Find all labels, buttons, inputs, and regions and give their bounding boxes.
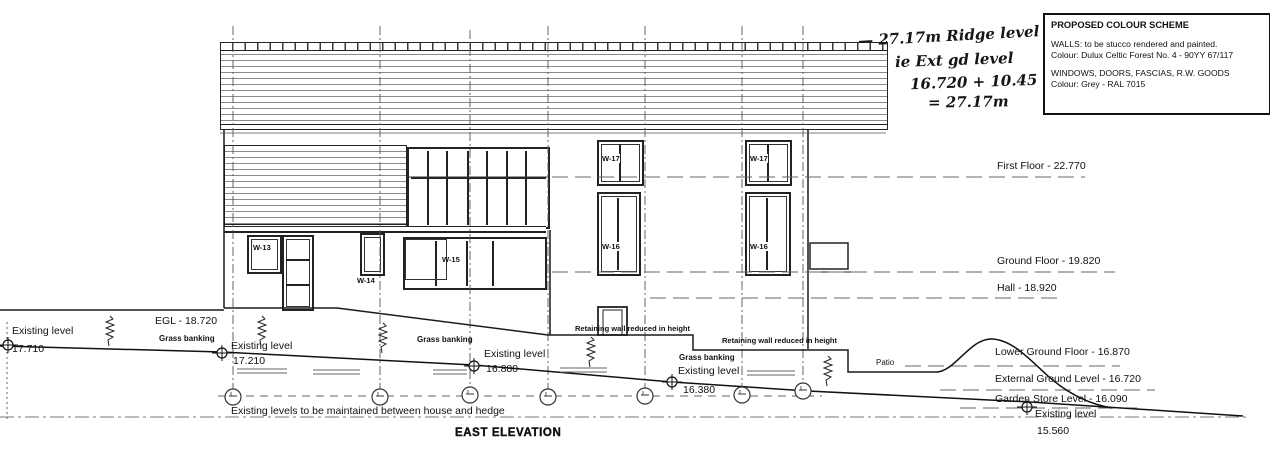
grass-banking-label-3: Grass banking [679, 354, 735, 362]
existing-level-15560-value: 15.560 [1037, 426, 1069, 437]
grass-banking-label-2: Grass banking [417, 336, 473, 344]
lower-ground-floor-level-label: Lower Ground Floor - 16.870 [995, 347, 1130, 358]
existing-level-16380-label: Existing level [678, 366, 739, 377]
building-outline [220, 130, 886, 349]
drawing-title: EAST ELEVATION [455, 427, 561, 439]
existing-level-17210-label: Existing level [231, 341, 292, 352]
hall-level-label: Hall - 18.920 [997, 283, 1057, 294]
existing-level-16380-value: 16.380 [683, 385, 715, 396]
existing-level-15560-label: Existing level [1035, 409, 1096, 420]
ground-floor-level-label: Ground Floor - 19.820 [997, 256, 1100, 267]
colour-scheme-title: PROPOSED COLOUR SCHEME [1051, 20, 1263, 31]
garden-store-level-label: Garden Store Level - 16.090 [995, 394, 1128, 405]
existing-level-17710-value: 17.710 [12, 344, 44, 355]
colour-scheme-windows-line1: WINDOWS, DOORS, FASCIAS, R.W. GOODS [1051, 68, 1263, 78]
right-wall-box [806, 243, 852, 272]
retaining-wall-note-1: Retaining wall reduced in height [575, 325, 690, 333]
colour-scheme-windows-line2: Colour: Grey - RAL 7015 [1051, 79, 1263, 89]
existing-level-16880-value: 16.880 [486, 364, 518, 375]
existing-level-16880-label: Existing level [484, 349, 545, 360]
handwritten-note-line4: = 27.17m [928, 92, 1009, 111]
maintain-levels-note: Existing levels to be maintained between… [231, 406, 505, 417]
egl-label: EGL - 18.720 [155, 316, 217, 327]
existing-level-17710-label: Existing level [12, 326, 73, 337]
proposed-colour-scheme-box: PROPOSED COLOUR SCHEME WALLS: to be stuc… [1043, 13, 1270, 115]
external-ground-level-label: External Ground Level - 16.720 [995, 374, 1141, 385]
manhole-markers [225, 383, 811, 405]
colour-scheme-walls-line1: WALLS: to be stucco rendered and painted… [1051, 39, 1263, 49]
retaining-wall-note-2: Retaining wall reduced in height [722, 337, 837, 345]
existing-level-17210-value: 17.210 [233, 356, 265, 367]
colour-scheme-spacer [1051, 60, 1263, 68]
colour-scheme-walls-line2: Colour: Dulux Celtic Forest No. 4 - 90YY… [1051, 50, 1263, 60]
patio-label: Patio [876, 359, 894, 367]
grass-banking-label-1: Grass banking [159, 335, 215, 343]
first-floor-level-label: First Floor - 22.770 [997, 161, 1086, 172]
east-elevation-drawing-sheet: W-13 W-14 W-15 W-17 W-17 W-16 W-16 [0, 0, 1270, 452]
